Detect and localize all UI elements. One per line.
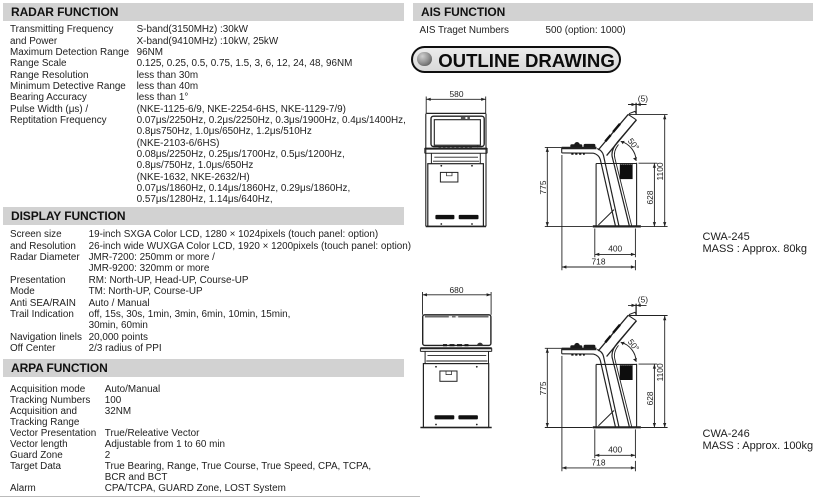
svg-text:680: 680 — [450, 285, 464, 295]
svg-text:580: 580 — [450, 89, 464, 99]
